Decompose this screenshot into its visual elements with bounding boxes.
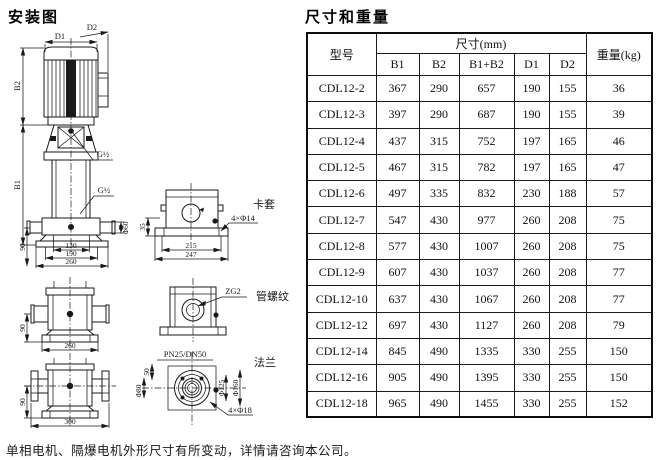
- cell-value: 79: [586, 312, 652, 338]
- cell-value: 255: [549, 365, 586, 391]
- clamp-baseplate-view: 35 215 247 4×Φ14 卡套: [138, 183, 275, 261]
- table-row: CDL12-339729068719015539: [307, 102, 652, 128]
- cell-value: 657: [459, 76, 514, 102]
- cell-value: 190: [514, 102, 549, 128]
- cell-value: 197: [514, 128, 549, 154]
- cell-value: 782: [459, 154, 514, 180]
- cell-value: 1007: [459, 233, 514, 259]
- clamp-label: 卡套: [253, 198, 275, 211]
- dim-label-50: 50: [142, 368, 151, 376]
- cell-value: 437: [376, 128, 419, 154]
- table-row: CDL12-148454901335330255150: [307, 338, 652, 364]
- holes-label-4x14: 4×Φ14: [231, 213, 256, 223]
- cell-value: 165: [549, 128, 586, 154]
- cell-value: 1455: [459, 391, 514, 417]
- col-header-b1b2: B1+B2: [459, 54, 514, 76]
- dimensions-weight-table: 型号 尺寸(mm) 重量(kg) B1 B2 B1+B2 D1 D2 CDL12…: [306, 32, 653, 418]
- col-header-model: 型号: [307, 33, 376, 76]
- col-header-b2: B2: [419, 54, 459, 76]
- dim-label-b2: B2: [12, 81, 22, 91]
- zg2-label: ZG2: [225, 286, 241, 296]
- cell-value: 155: [549, 76, 586, 102]
- cell-model: CDL12-4: [307, 128, 376, 154]
- cell-value: 260: [514, 233, 549, 259]
- cell-value: 697: [376, 312, 419, 338]
- cell-value: 315: [419, 128, 459, 154]
- cell-value: 36: [586, 76, 652, 102]
- col-header-dims-group: 尺寸(mm): [376, 33, 586, 54]
- table-body: CDL12-236729065719015536CDL12-3397290687…: [307, 76, 652, 418]
- cell-value: 260: [514, 207, 549, 233]
- cell-value: 577: [376, 233, 419, 259]
- cell-value: 1127: [459, 312, 514, 338]
- cell-value: 260: [514, 286, 549, 312]
- cell-value: 230: [514, 181, 549, 207]
- footnote-text: 单相电机、隔爆电机外形尺寸有所变动，详情请咨询本公司。: [6, 440, 357, 459]
- holes-label-4x18: 4×Φ18: [228, 405, 252, 415]
- flange-label: 法兰: [254, 355, 276, 369]
- cell-value: 1395: [459, 365, 514, 391]
- cell-value: 77: [586, 260, 652, 286]
- cell-value: 255: [549, 338, 586, 364]
- table-row: CDL12-8577430100726020875: [307, 233, 652, 259]
- cell-model: CDL12-5: [307, 154, 376, 180]
- table-row: CDL12-10637430106726020877: [307, 286, 652, 312]
- dim-label-dia60: Φ60: [121, 221, 130, 234]
- cell-model: CDL12-12: [307, 312, 376, 338]
- cell-value: 165: [549, 154, 586, 180]
- cell-model: CDL12-3: [307, 102, 376, 128]
- cell-value: 497: [376, 181, 419, 207]
- table-row: CDL12-443731575219716546: [307, 128, 652, 154]
- cell-value: 290: [419, 76, 459, 102]
- cell-value: 77: [586, 286, 652, 312]
- dim-label-260-front: 260: [64, 341, 76, 350]
- table-row: CDL12-546731578219716547: [307, 154, 652, 180]
- cell-value: 208: [549, 312, 586, 338]
- pipe-thread-side-view: ZG2 管螺纹: [160, 278, 289, 342]
- cell-value: 255: [549, 391, 586, 417]
- col-header-d2: D2: [549, 54, 586, 76]
- cell-value: 607: [376, 260, 419, 286]
- col-header-d1: D1: [514, 54, 549, 76]
- cell-model: CDL12-18: [307, 391, 376, 417]
- dim-label-247: 247: [185, 250, 197, 259]
- cell-value: 490: [419, 365, 459, 391]
- cell-value: 335: [419, 181, 459, 207]
- dim-label-215: 215: [185, 241, 197, 250]
- cell-value: 752: [459, 128, 514, 154]
- table-row: CDL12-189654901455330255152: [307, 391, 652, 417]
- cell-value: 208: [549, 233, 586, 259]
- pn-dn-label: PN25/DN50: [164, 349, 207, 359]
- cell-value: 845: [376, 338, 419, 364]
- pump-base-front-view: 90 260: [18, 277, 109, 352]
- cell-value: 152: [586, 391, 652, 417]
- cell-value: 260: [514, 260, 549, 286]
- motor-shaft-stripe: [66, 60, 76, 117]
- cell-value: 1037: [459, 260, 514, 286]
- dim-label-dia80: Φ80: [134, 384, 143, 397]
- port-label-g-lower: G½: [98, 185, 111, 195]
- table-row: CDL12-236729065719015536: [307, 76, 652, 102]
- col-header-weight: 重量(kg): [586, 33, 652, 76]
- cell-value: 430: [419, 312, 459, 338]
- cell-value: 46: [586, 128, 652, 154]
- pump-motor-assembly-view: D1 D2 B2 B1: [12, 22, 130, 268]
- cell-value: 367: [376, 76, 419, 102]
- cell-value: 315: [419, 154, 459, 180]
- cell-value: 490: [419, 391, 459, 417]
- cell-value: 397: [376, 102, 419, 128]
- cell-value: 75: [586, 233, 652, 259]
- cell-model: CDL12-6: [307, 181, 376, 207]
- cell-model: CDL12-8: [307, 233, 376, 259]
- cell-value: 637: [376, 286, 419, 312]
- cell-model: CDL12-7: [307, 207, 376, 233]
- table-header-row-1: 型号 尺寸(mm) 重量(kg): [307, 33, 652, 54]
- cell-value: 490: [419, 338, 459, 364]
- cell-value: 330: [514, 391, 549, 417]
- col-header-b1: B1: [376, 54, 419, 76]
- dim-label-260: 260: [65, 257, 77, 266]
- cell-value: 57: [586, 181, 652, 207]
- cell-value: 430: [419, 260, 459, 286]
- table-row: CDL12-754743097726020875: [307, 207, 652, 233]
- table-row: CDL12-12697430112726020879: [307, 312, 652, 338]
- installation-drawing: D1 D2 B2 B1: [0, 0, 305, 460]
- cell-value: 467: [376, 154, 419, 180]
- dim-label-d2: D2: [87, 22, 97, 32]
- cell-value: 430: [419, 207, 459, 233]
- cell-value: 1067: [459, 286, 514, 312]
- cell-value: 47: [586, 154, 652, 180]
- cell-value: 977: [459, 207, 514, 233]
- dim-label-300: 300: [64, 417, 76, 426]
- flange-detail-view: PN25/DN50 50 Φ80 Φ125 Φ160 4×Φ18 法兰: [134, 349, 276, 426]
- cell-value: 150: [586, 338, 652, 364]
- cell-value: 290: [419, 102, 459, 128]
- cell-value: 905: [376, 365, 419, 391]
- cell-value: 832: [459, 181, 514, 207]
- cell-value: 547: [376, 207, 419, 233]
- cell-value: 965: [376, 391, 419, 417]
- dim-label-90-front: 90: [18, 324, 27, 332]
- dim-label-dia125: Φ125: [217, 379, 226, 396]
- cell-value: 330: [514, 338, 549, 364]
- cell-value: 150: [586, 365, 652, 391]
- table-row: CDL12-169054901395330255150: [307, 365, 652, 391]
- port-label-g-upper: G½: [97, 149, 110, 159]
- cell-value: 188: [549, 181, 586, 207]
- dim-label-d1: D1: [55, 31, 65, 41]
- cell-value: 208: [549, 207, 586, 233]
- dim-label-dia160: Φ160: [231, 379, 240, 396]
- cell-model: CDL12-2: [307, 76, 376, 102]
- cell-model: CDL12-10: [307, 286, 376, 312]
- cell-value: 260: [514, 312, 549, 338]
- cell-value: 1335: [459, 338, 514, 364]
- cell-value: 208: [549, 260, 586, 286]
- cell-value: 75: [586, 207, 652, 233]
- dim-label-b1: B1: [12, 180, 22, 190]
- dim-label-90-flanged: 90: [18, 398, 27, 406]
- table-row: CDL12-649733583223018857: [307, 181, 652, 207]
- dim-label-35: 35: [138, 223, 147, 231]
- cell-value: 39: [586, 102, 652, 128]
- cell-value: 330: [514, 365, 549, 391]
- flanged-pump-view: 90 300: [18, 353, 116, 428]
- datasheet-page: 安装图 尺寸和重量 D1 D2 B2 B1: [0, 0, 657, 460]
- cell-value: 208: [549, 286, 586, 312]
- cell-value: 687: [459, 102, 514, 128]
- cell-value: 197: [514, 154, 549, 180]
- cell-value: 190: [514, 76, 549, 102]
- cell-model: CDL12-14: [307, 338, 376, 364]
- cell-model: CDL12-9: [307, 260, 376, 286]
- dim-label-90-main: 90: [18, 243, 27, 251]
- table-row: CDL12-9607430103726020877: [307, 260, 652, 286]
- cell-value: 430: [419, 286, 459, 312]
- pipe-thread-label: 管螺纹: [256, 289, 289, 303]
- cell-value: 155: [549, 102, 586, 128]
- cell-value: 430: [419, 233, 459, 259]
- dimensions-weight-title: 尺寸和重量: [305, 6, 390, 27]
- cell-model: CDL12-16: [307, 365, 376, 391]
